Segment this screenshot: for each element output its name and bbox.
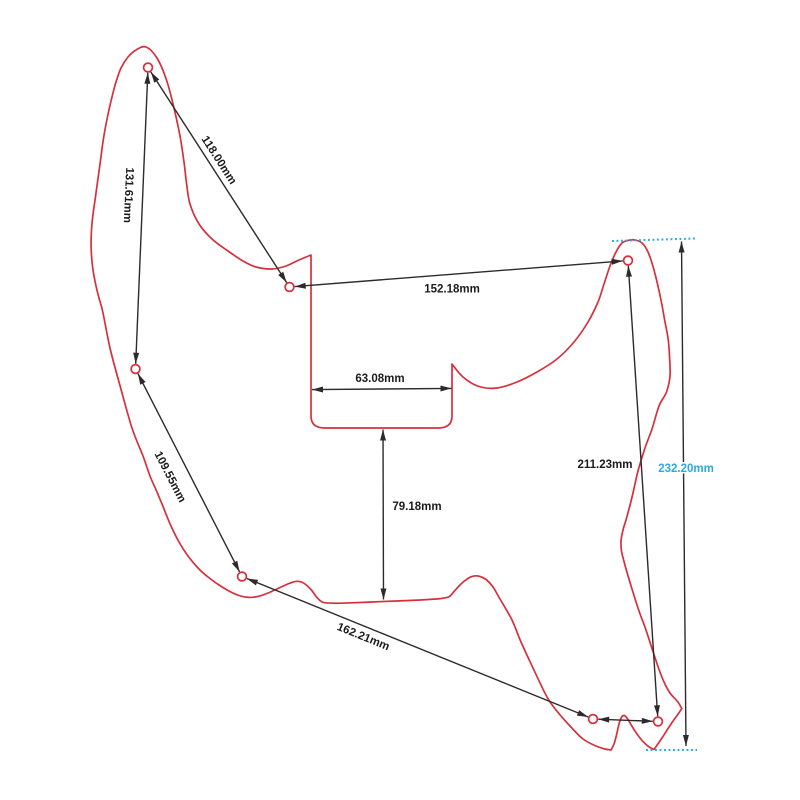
svg-text:63.08mm: 63.08mm <box>355 373 404 385</box>
svg-text:131.61mm: 131.61mm <box>121 167 135 223</box>
svg-text:232.20mm: 232.20mm <box>658 463 714 475</box>
svg-text:211.23mm: 211.23mm <box>578 459 633 471</box>
svg-text:79.18mm: 79.18mm <box>392 501 441 513</box>
svg-text:152.18mm: 152.18mm <box>424 284 480 296</box>
